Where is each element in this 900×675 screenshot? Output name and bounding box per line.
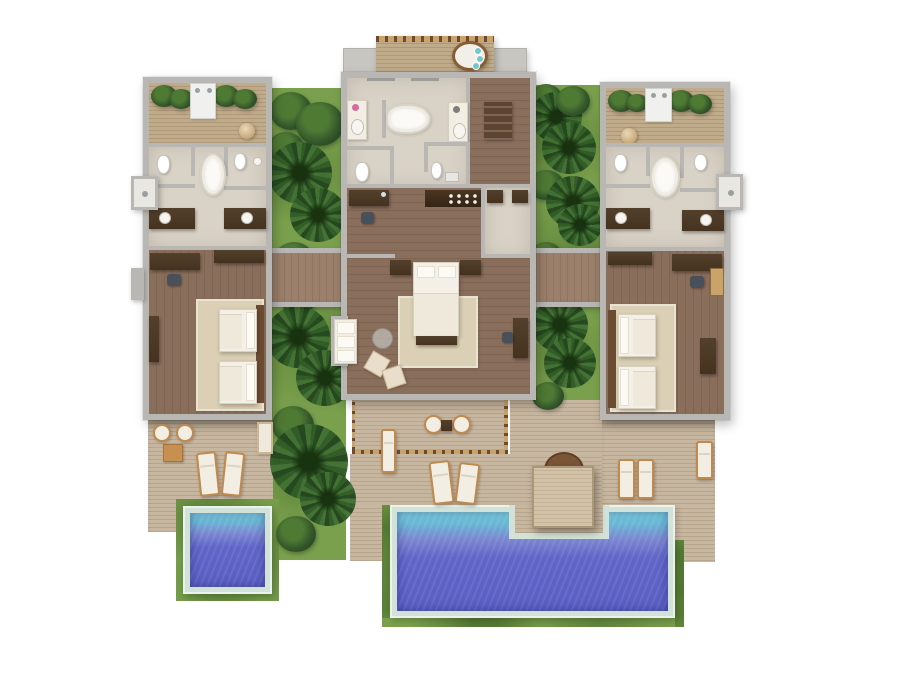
deck-railing-left bbox=[352, 398, 355, 450]
towel-bar bbox=[411, 78, 439, 81]
writing-desk bbox=[150, 253, 200, 270]
headboard bbox=[608, 310, 616, 408]
partition-wall bbox=[606, 143, 724, 147]
sun-lounger bbox=[637, 459, 654, 499]
partition-wall bbox=[347, 146, 394, 150]
twin-bed bbox=[618, 314, 656, 357]
floor-plan-canvas bbox=[0, 0, 900, 675]
master-bathtub bbox=[386, 104, 431, 134]
pavilion-roof-left bbox=[343, 48, 378, 73]
sofa-cushion bbox=[337, 350, 355, 362]
west-corridor bbox=[264, 253, 348, 302]
wardrobe bbox=[608, 252, 652, 265]
desk-chair bbox=[361, 212, 374, 224]
duvet bbox=[633, 371, 655, 406]
balcony-daybed bbox=[452, 41, 488, 71]
toilet bbox=[157, 155, 170, 174]
king-bed bbox=[413, 262, 459, 336]
partition-wall bbox=[483, 254, 530, 258]
tv-console bbox=[700, 338, 716, 374]
duvet bbox=[633, 319, 655, 354]
sofa-cushion bbox=[337, 336, 355, 348]
partition-wall bbox=[680, 146, 684, 178]
palm-tree bbox=[544, 338, 596, 388]
deck-armchair bbox=[176, 424, 194, 442]
desk-chair bbox=[502, 332, 513, 343]
minibar-console bbox=[425, 190, 481, 207]
partition-wall bbox=[424, 142, 470, 146]
pillow bbox=[620, 317, 629, 354]
partition-wall bbox=[481, 188, 485, 258]
plunge-pool-water bbox=[190, 513, 265, 587]
partition-wall bbox=[149, 143, 266, 147]
pillow bbox=[620, 369, 629, 406]
palm-tree bbox=[300, 472, 356, 526]
vanity-counter bbox=[347, 100, 367, 140]
vanity-counter bbox=[448, 102, 468, 142]
desk-chair bbox=[167, 274, 181, 286]
bathtub bbox=[200, 153, 226, 196]
planting-bush bbox=[233, 89, 257, 109]
side-table bbox=[163, 444, 183, 462]
shower-head-icon bbox=[662, 93, 667, 98]
master-pavilion-building bbox=[341, 72, 536, 400]
media-console bbox=[513, 318, 528, 358]
bush bbox=[276, 516, 316, 552]
desk-lamp bbox=[381, 192, 386, 197]
washbasin bbox=[253, 157, 262, 166]
luggage-rack bbox=[710, 268, 724, 296]
vanity-sink bbox=[159, 212, 171, 224]
bathtub bbox=[650, 156, 680, 198]
daybed-cushion bbox=[474, 47, 482, 55]
west-entry-porch bbox=[131, 268, 144, 300]
dressing-bench bbox=[487, 190, 503, 203]
toilet bbox=[614, 154, 627, 172]
sun-lounger bbox=[696, 441, 713, 479]
pool-daybed-canopy bbox=[532, 466, 594, 528]
west-wing-building bbox=[143, 77, 272, 420]
outdoor-shower-panel bbox=[645, 88, 672, 122]
twin-bed bbox=[618, 366, 656, 409]
shower-stool bbox=[239, 123, 255, 139]
twin-bed bbox=[219, 361, 257, 404]
vanity-sink bbox=[241, 212, 253, 224]
sun-lounger bbox=[381, 429, 396, 473]
partition-wall bbox=[606, 247, 724, 251]
nightstand bbox=[460, 260, 481, 275]
partition-wall bbox=[224, 186, 266, 190]
planting-bush bbox=[688, 94, 712, 114]
toilet bbox=[355, 162, 369, 182]
partition-wall bbox=[390, 150, 394, 188]
deck-railing-right bbox=[504, 398, 508, 454]
shower-head-icon bbox=[651, 93, 656, 98]
pool-grass-edge-right bbox=[675, 540, 684, 627]
sun-lounger bbox=[618, 459, 635, 499]
partition-wall bbox=[191, 146, 195, 176]
deck-railing-front bbox=[352, 450, 508, 454]
bed-bench bbox=[416, 336, 457, 345]
dressing-bench bbox=[512, 190, 528, 203]
duvet bbox=[220, 366, 242, 401]
toilet bbox=[431, 162, 442, 179]
west-corridor-wall bbox=[264, 302, 348, 307]
flower-vase bbox=[352, 104, 359, 111]
pillow bbox=[246, 312, 255, 349]
east-shower-cabin bbox=[716, 174, 743, 210]
shower-head-icon bbox=[142, 191, 148, 197]
pillow bbox=[417, 266, 435, 278]
sofa bbox=[334, 319, 357, 364]
east-corridor-wall bbox=[526, 302, 606, 307]
partition-wall bbox=[606, 184, 650, 188]
wardrobe bbox=[214, 250, 264, 263]
headboard bbox=[256, 305, 264, 403]
entry-steps bbox=[484, 102, 512, 140]
shower-head-icon bbox=[207, 88, 212, 93]
vanity-sink bbox=[700, 214, 712, 226]
bush bbox=[296, 102, 344, 146]
nightstand bbox=[390, 260, 411, 275]
shower-tray bbox=[445, 172, 459, 182]
outdoor-shower-panel bbox=[190, 83, 216, 119]
west-shower-cabin bbox=[131, 176, 158, 210]
palm-tree bbox=[542, 122, 596, 174]
shower-head-icon bbox=[728, 190, 734, 196]
toilet bbox=[234, 153, 246, 170]
east-corridor bbox=[526, 253, 606, 302]
toilet bbox=[694, 154, 707, 171]
pillow bbox=[438, 266, 456, 278]
deck-armchair bbox=[153, 424, 171, 442]
daybed-cushion bbox=[472, 62, 480, 70]
pool-grass-edge-bottom bbox=[382, 618, 684, 627]
palm-tree bbox=[558, 204, 602, 246]
vanity-sink bbox=[453, 123, 466, 139]
pillow bbox=[246, 364, 255, 401]
east-wing-building bbox=[600, 82, 730, 420]
pavilion-roof-right bbox=[493, 48, 527, 73]
towel-cabinet bbox=[257, 422, 273, 454]
partition-wall bbox=[347, 254, 395, 258]
deck-chair bbox=[452, 415, 471, 434]
toiletry-item bbox=[453, 106, 460, 113]
vanity-sink bbox=[351, 119, 364, 135]
shower-stool bbox=[621, 128, 637, 144]
duvet bbox=[220, 314, 242, 349]
coffee-table bbox=[372, 328, 393, 349]
duvet bbox=[414, 293, 458, 336]
bush bbox=[532, 382, 564, 410]
vanity-counter bbox=[149, 208, 195, 229]
twin-bed bbox=[219, 309, 257, 352]
vanity-sink bbox=[615, 212, 627, 224]
sofa-cushion bbox=[337, 322, 355, 334]
bush bbox=[556, 86, 590, 116]
vanity-counter bbox=[606, 208, 650, 229]
shower-head-icon bbox=[195, 88, 200, 93]
towel-bar bbox=[367, 78, 395, 81]
tv-console bbox=[149, 316, 159, 362]
deck-table bbox=[441, 420, 452, 431]
partition-wall bbox=[424, 142, 428, 172]
desk-chair bbox=[690, 276, 704, 288]
palm-tree bbox=[290, 188, 346, 242]
